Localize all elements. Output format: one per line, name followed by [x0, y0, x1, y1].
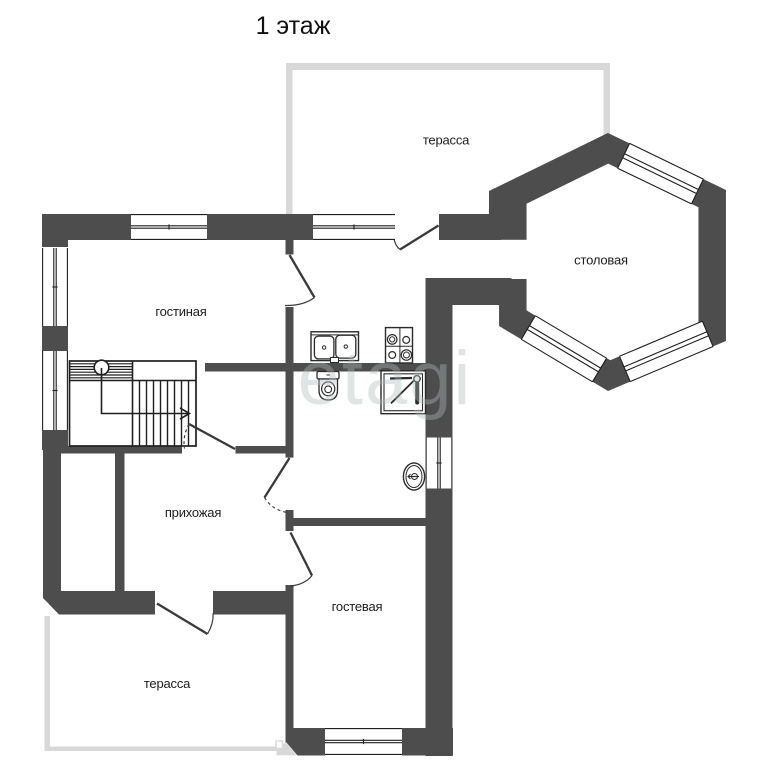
svg-text:терасса: терасса — [423, 133, 470, 148]
svg-text:столовая: столовая — [574, 253, 628, 268]
svg-text:1 этаж: 1 этаж — [256, 12, 331, 40]
svg-text:гостиная: гостиная — [155, 304, 206, 319]
svg-text:etagi: etagi — [298, 336, 473, 421]
svg-text:гостевая: гостевая — [332, 599, 383, 614]
svg-text:прихожая: прихожая — [165, 505, 221, 520]
svg-text:терасса: терасса — [144, 676, 191, 691]
